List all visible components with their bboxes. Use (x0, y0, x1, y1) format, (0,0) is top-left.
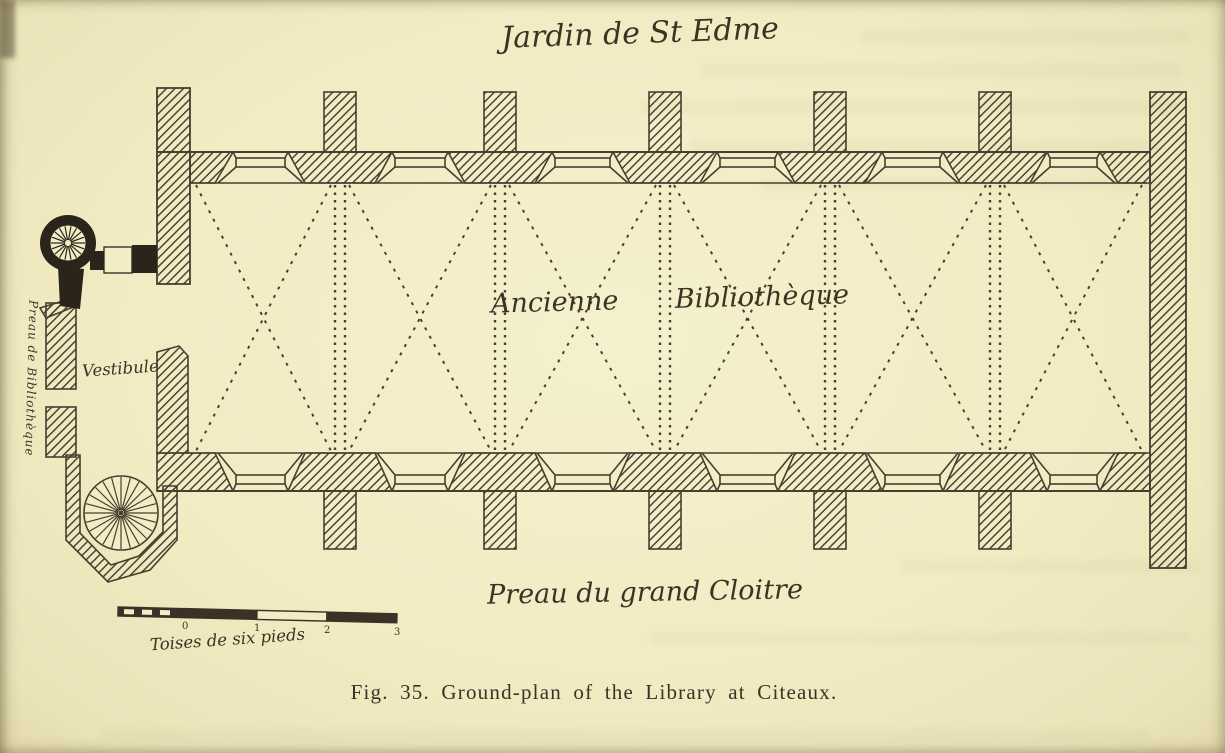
south-piers (157, 453, 1150, 491)
east-end-wall (1150, 92, 1186, 568)
north-buttresses (324, 92, 1011, 152)
northwest-stair-turret (40, 215, 157, 309)
figure-caption: Fig. 35. Ground-plan of the Library at C… (244, 680, 944, 705)
north-wall (157, 92, 1150, 183)
north-piers (190, 152, 1150, 183)
scale-tick-3: 3 (394, 627, 400, 638)
south-buttresses (324, 491, 1011, 549)
scale-tick-0: 0 (182, 621, 188, 632)
south-wall (157, 453, 1150, 549)
page-corner-smudge (0, 0, 15, 58)
west-end-wall (157, 88, 190, 284)
scale-tick-1: 1 (254, 623, 260, 634)
scanned-book-page: Jardin de St Edme Ancienne Bibliothèque … (0, 0, 1225, 753)
scale-bar (118, 607, 397, 623)
scale-tick-2: 2 (324, 625, 330, 636)
